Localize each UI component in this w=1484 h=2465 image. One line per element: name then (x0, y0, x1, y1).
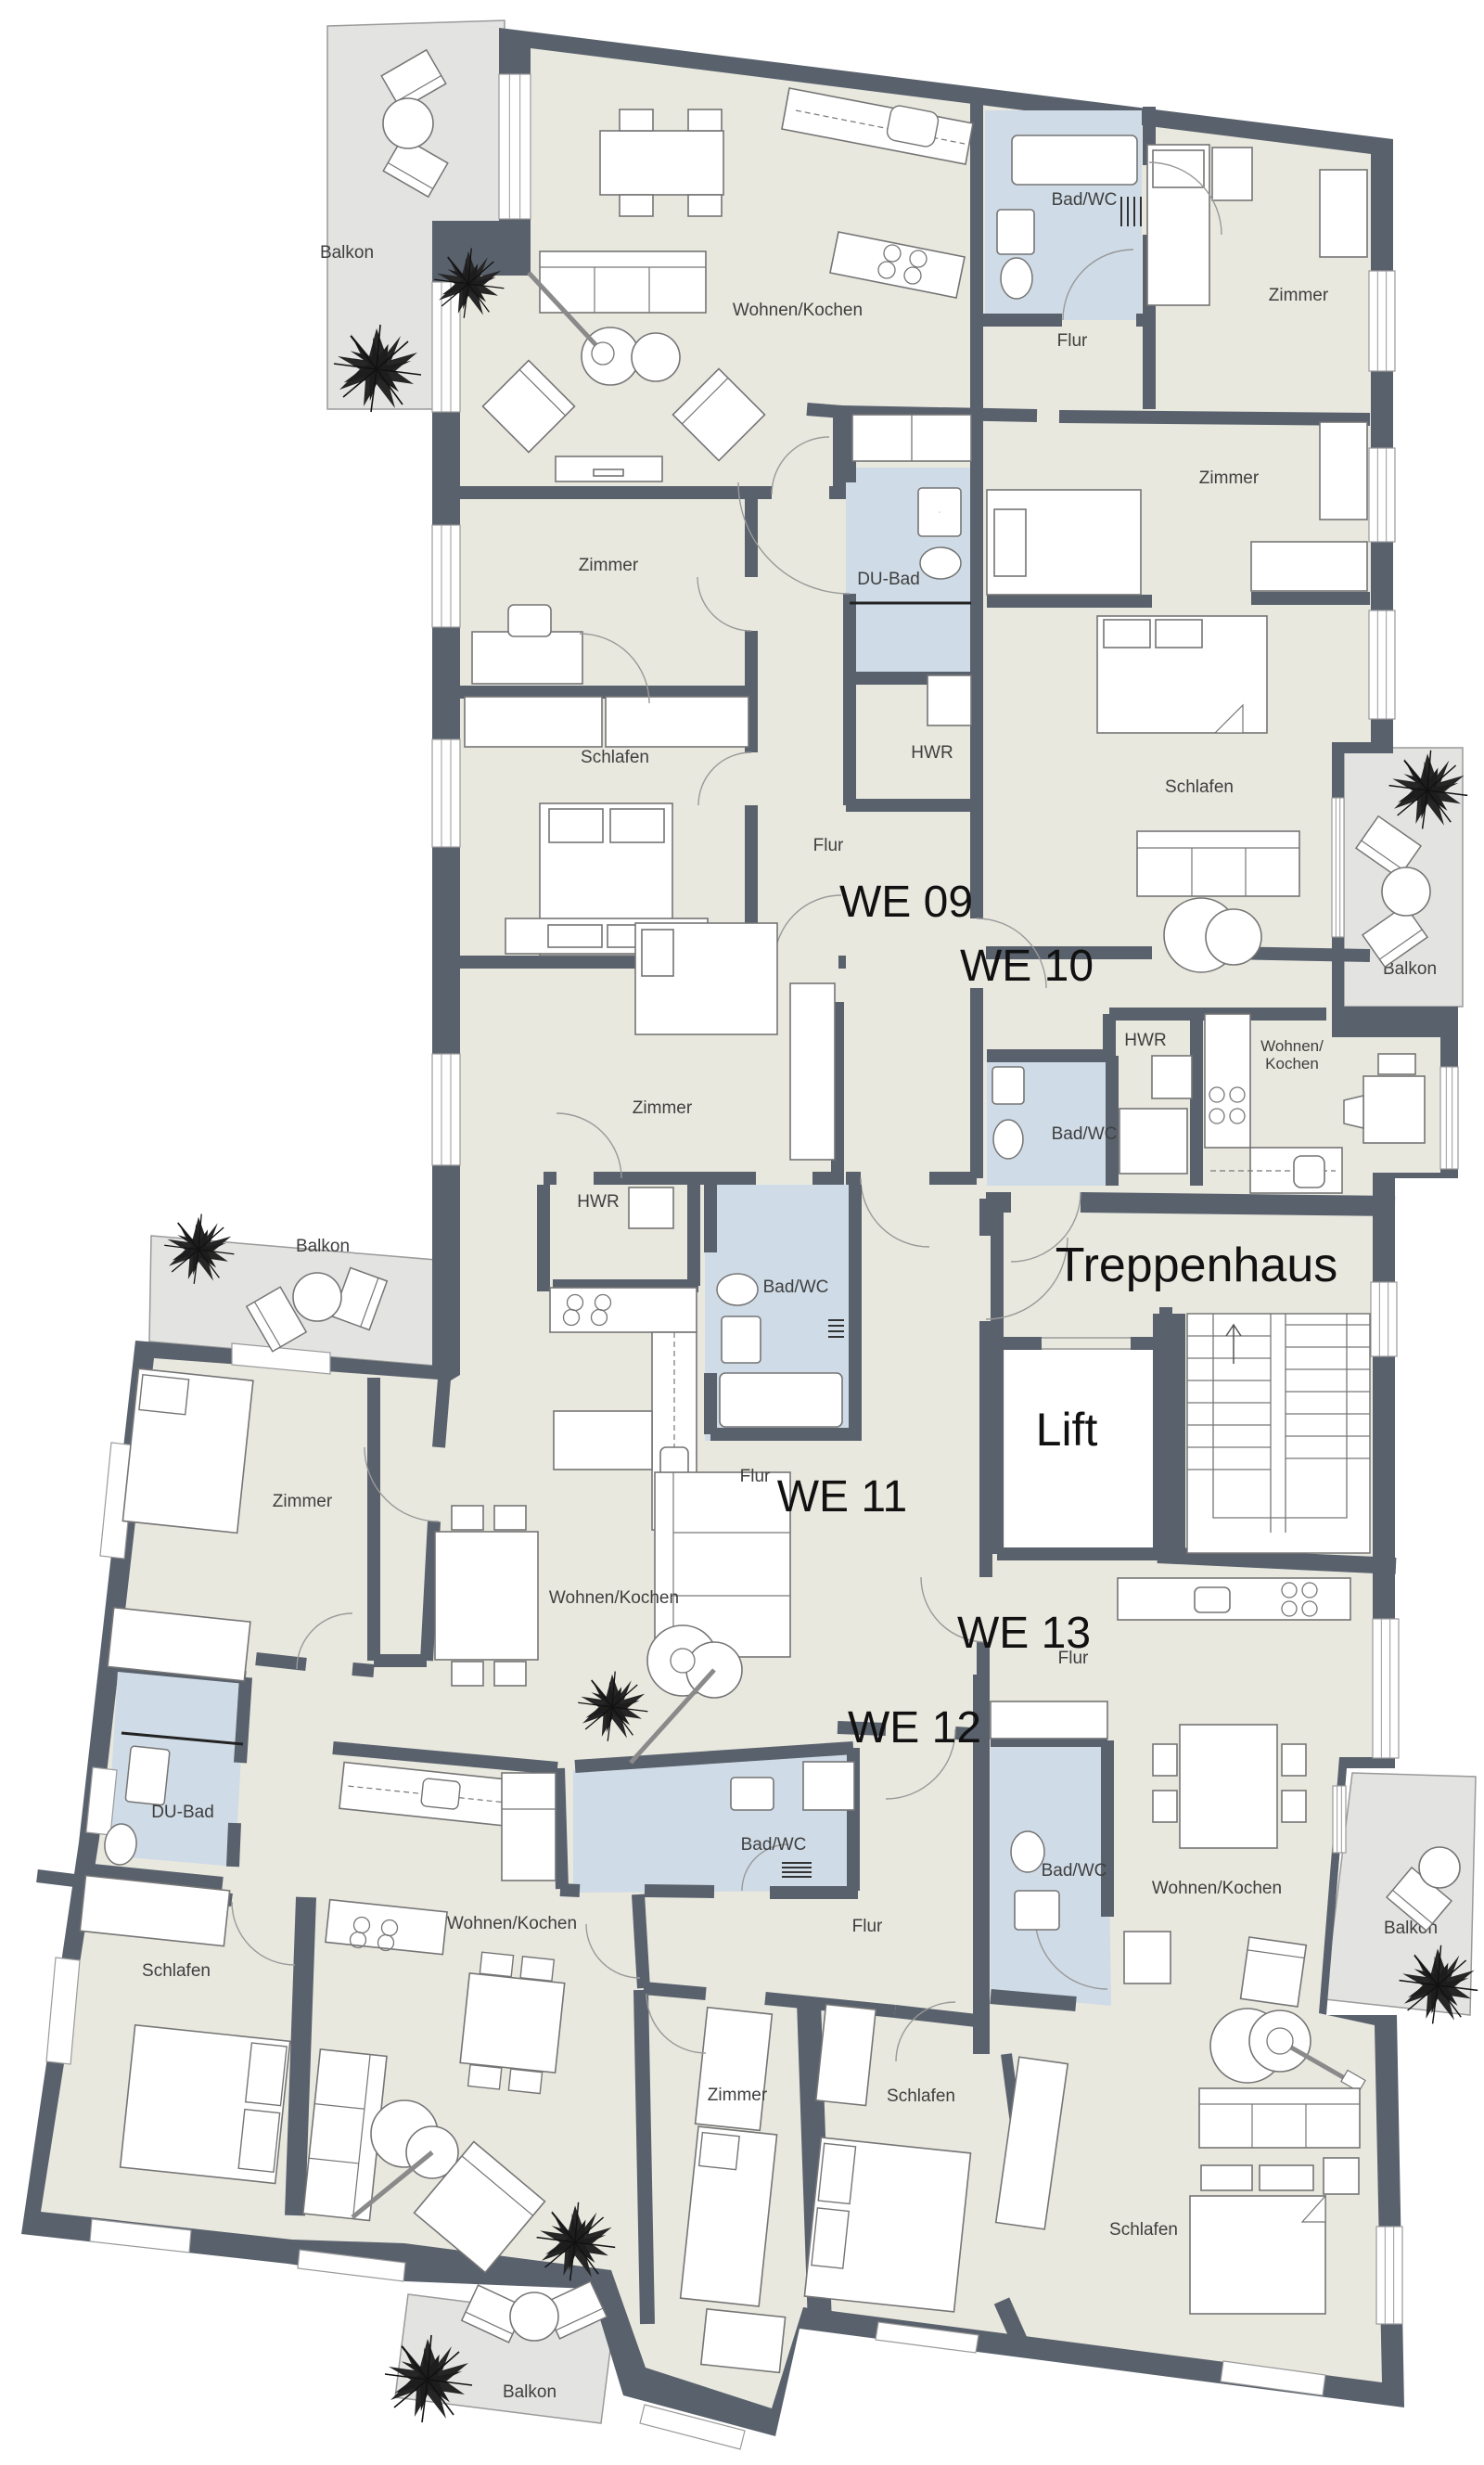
svg-text:WE 13: WE 13 (957, 1609, 1091, 1658)
svg-text:Schlafen: Schlafen (887, 2086, 955, 2106)
svg-text:Balkon: Balkon (296, 1237, 350, 1256)
svg-text:HWR: HWR (1124, 1031, 1166, 1050)
svg-text:Wohnen/Kochen: Wohnen/Kochen (1152, 1879, 1282, 1898)
svg-text:HWR: HWR (911, 743, 953, 763)
svg-text:Zimmer: Zimmer (1269, 286, 1329, 305)
svg-text:Zimmer: Zimmer (579, 556, 639, 575)
svg-text:Wohnen/Kochen: Wohnen/Kochen (549, 1588, 679, 1608)
svg-text:WE 09: WE 09 (839, 878, 973, 927)
svg-text:Flur: Flur (1057, 331, 1088, 351)
svg-text:Bad/WC: Bad/WC (741, 1835, 807, 1855)
svg-text:Wohnen/Kochen: Wohnen/Kochen (447, 1914, 577, 1933)
svg-text:Schlafen: Schlafen (1165, 777, 1234, 797)
svg-text:Kochen: Kochen (1265, 1055, 1319, 1072)
svg-text:HWR: HWR (577, 1192, 619, 1212)
svg-text:Balkon: Balkon (503, 2382, 556, 2402)
svg-text:Wohnen/Kochen: Wohnen/Kochen (733, 301, 863, 320)
svg-text:DU-Bad: DU-Bad (857, 570, 920, 589)
svg-text:Zimmer: Zimmer (708, 2086, 768, 2105)
svg-text:Schlafen: Schlafen (581, 748, 649, 767)
svg-text:Lift: Lift (1036, 1404, 1098, 1456)
svg-text:Zimmer: Zimmer (273, 1492, 333, 1511)
svg-text:WE 12: WE 12 (848, 1703, 981, 1752)
svg-text:Balkon: Balkon (320, 243, 374, 263)
svg-text:WE 10: WE 10 (960, 942, 1094, 991)
svg-text:Bad/WC: Bad/WC (1042, 1861, 1107, 1881)
svg-text:Treppenhaus: Treppenhaus (1055, 1239, 1338, 1292)
svg-text:Bad/WC: Bad/WC (763, 1277, 829, 1297)
svg-text:Flur: Flur (852, 1917, 883, 1936)
svg-text:Bad/WC: Bad/WC (1052, 1124, 1118, 1144)
svg-text:Schlafen: Schlafen (1109, 2220, 1178, 2240)
svg-text:Flur: Flur (813, 836, 844, 855)
svg-text:DU-Bad: DU-Bad (151, 1803, 214, 1822)
svg-text:Zimmer: Zimmer (633, 1098, 693, 1118)
svg-text:Bad/WC: Bad/WC (1052, 190, 1118, 210)
svg-text:Schlafen: Schlafen (142, 1961, 211, 1981)
svg-text:Wohnen/: Wohnen/ (1260, 1037, 1324, 1055)
svg-text:Zimmer: Zimmer (1199, 469, 1260, 488)
svg-text:Flur: Flur (740, 1467, 771, 1486)
svg-text:WE 11: WE 11 (777, 1472, 907, 1521)
